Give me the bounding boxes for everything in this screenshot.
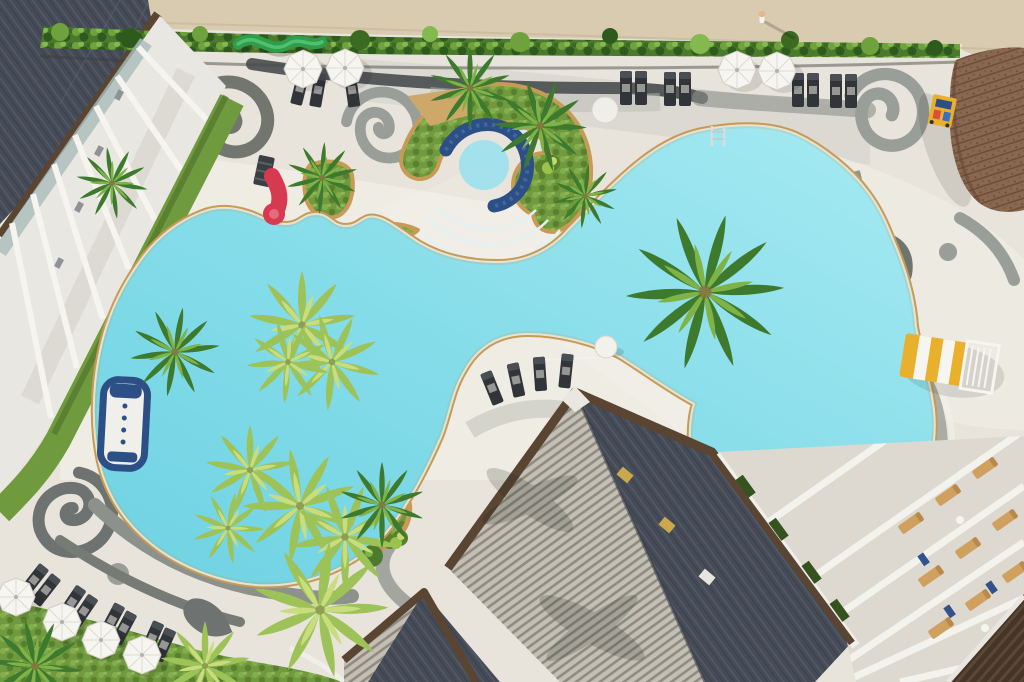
floating-daybed: [100, 379, 149, 469]
scene-canvas: [0, 0, 1024, 682]
green-water-slide: [238, 40, 325, 51]
resort-pool-aerial-photo: Aerial top-down view of a tropical resor…: [0, 0, 1024, 682]
white-ball-ornament: [595, 336, 617, 358]
